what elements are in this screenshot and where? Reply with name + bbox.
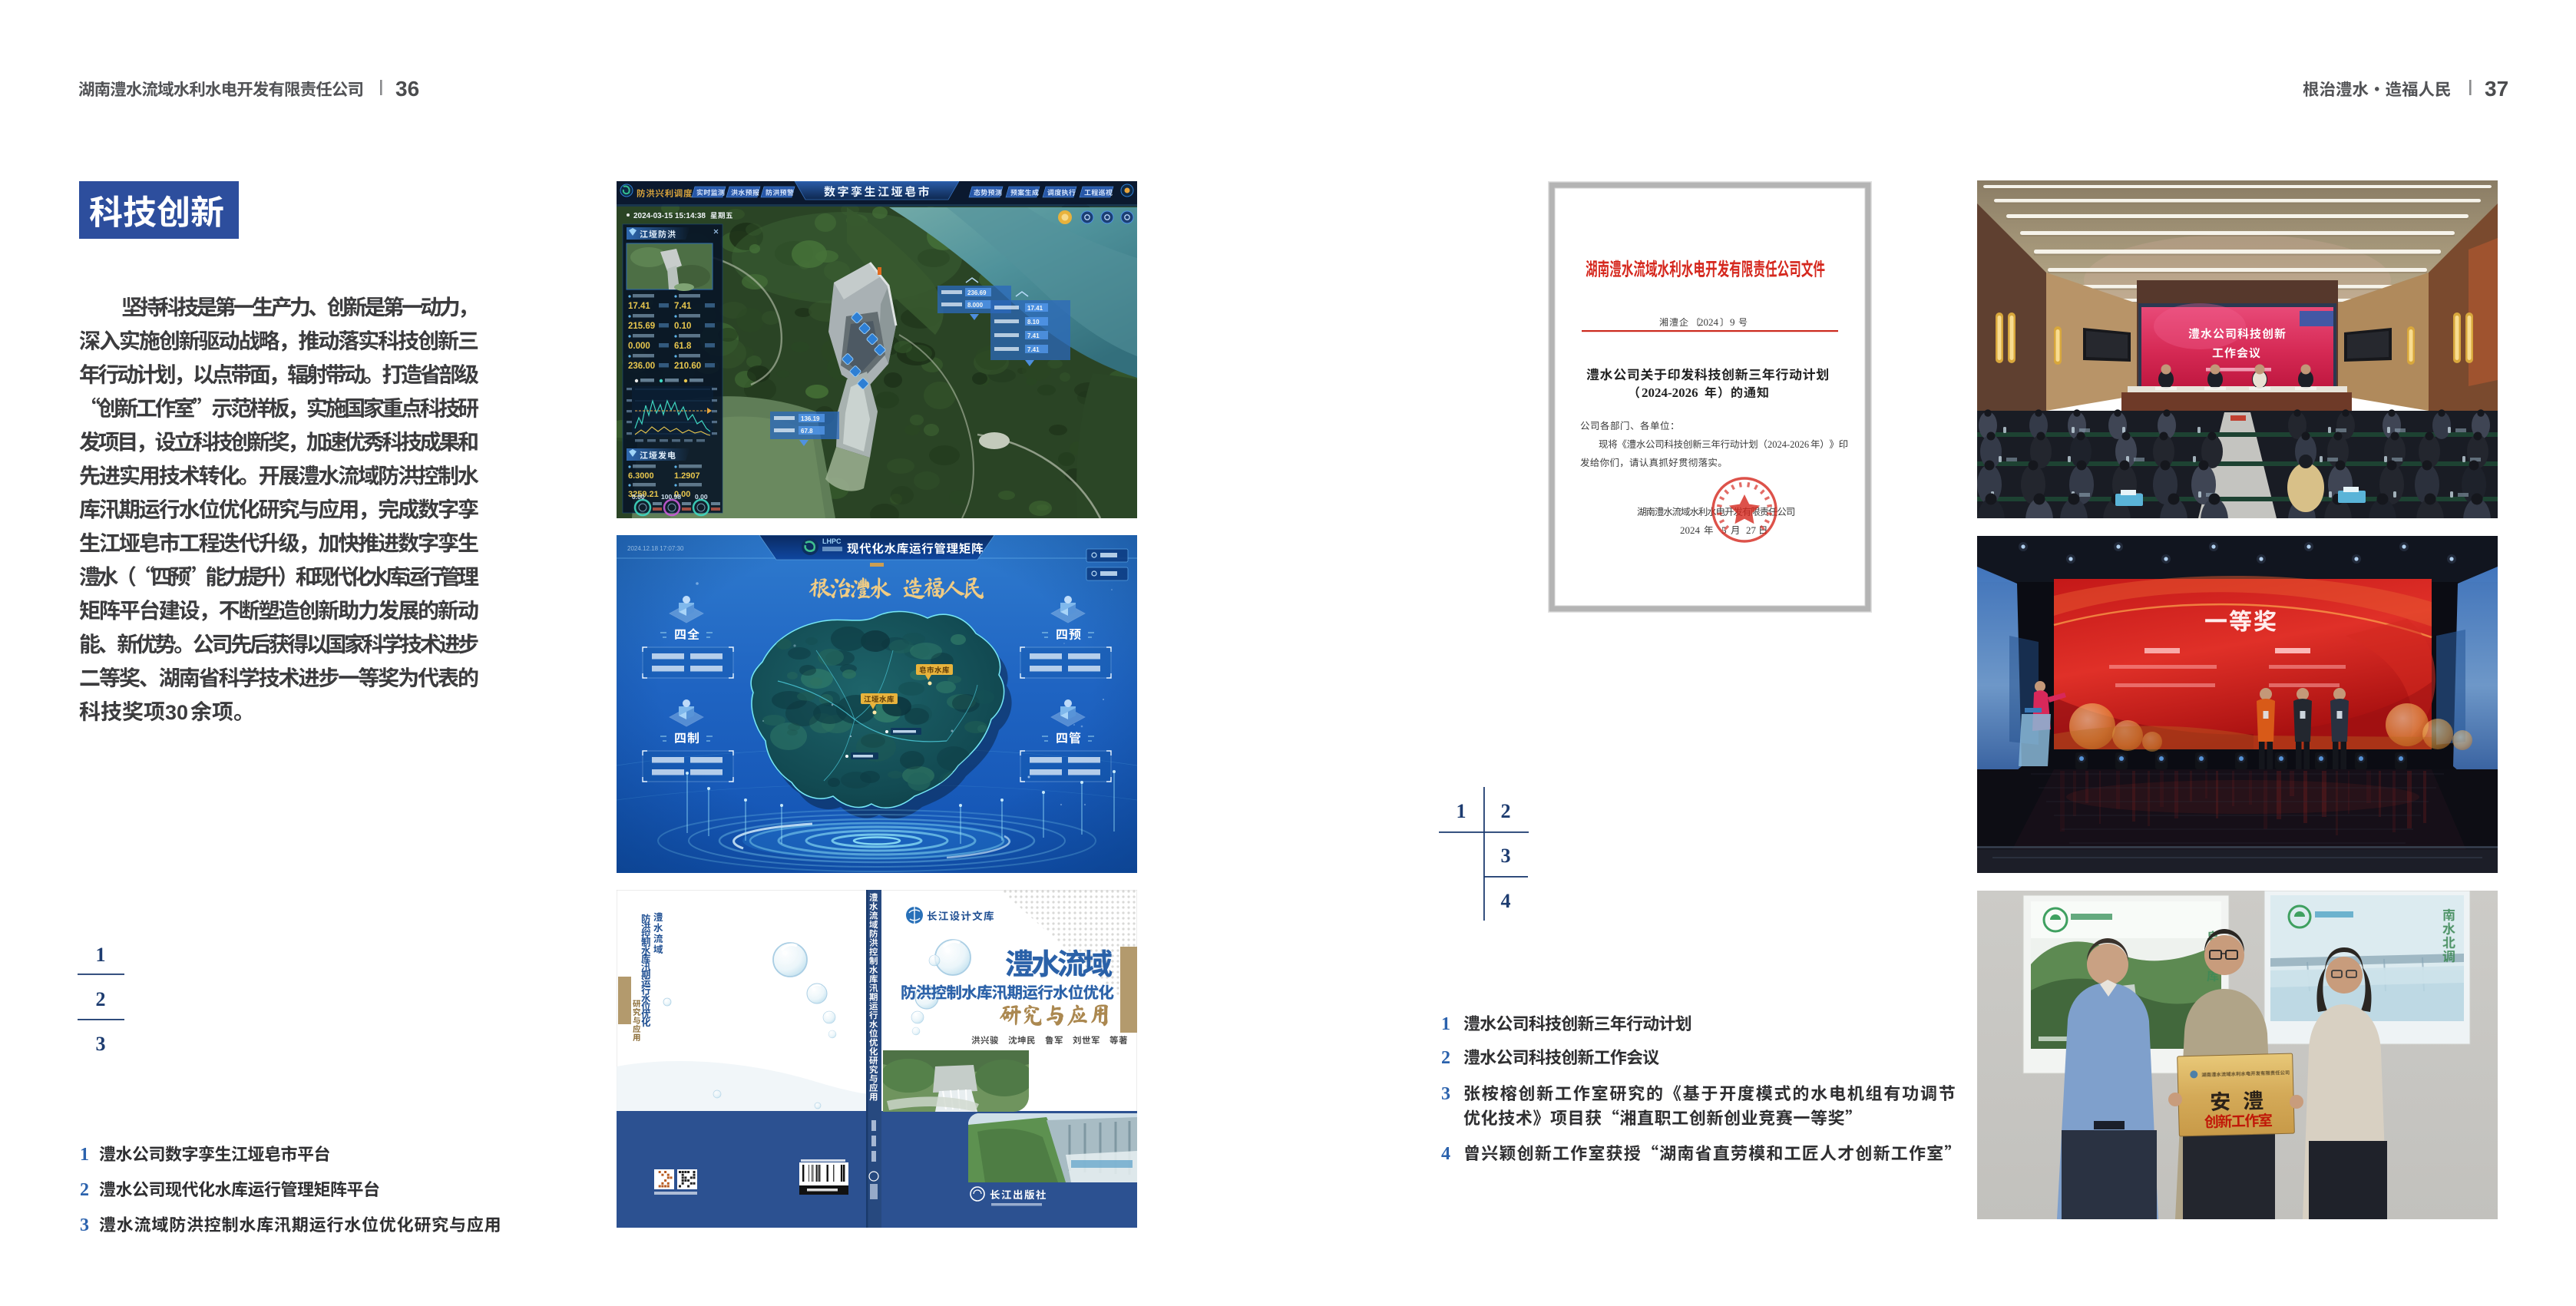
- svg-text:1.2907: 1.2907: [674, 471, 700, 481]
- svg-text:4: 4: [1441, 1144, 1450, 1164]
- svg-text:3: 3: [1441, 1084, 1450, 1104]
- svg-text:9: 9: [1730, 316, 1735, 328]
- svg-text:1: 1: [96, 944, 106, 966]
- svg-text:2024.12.18 17:07:30: 2024.12.18 17:07:30: [627, 545, 684, 552]
- svg-text:17.41: 17.41: [628, 302, 650, 311]
- svg-text:4: 4: [1501, 890, 1511, 912]
- svg-text:2024: 2024: [1680, 524, 1701, 536]
- svg-text:210.60: 210.60: [674, 362, 701, 371]
- svg-text:7.41: 7.41: [674, 302, 692, 311]
- svg-text:3: 3: [1501, 845, 1511, 867]
- svg-text:136.19: 136.19: [801, 415, 820, 422]
- svg-text:2024-03-15 15:14:38: 2024-03-15 15:14:38: [633, 212, 706, 220]
- svg-text:7.41: 7.41: [1027, 332, 1040, 339]
- svg-text:LHPC: LHPC: [822, 537, 842, 545]
- svg-text:6.3000: 6.3000: [628, 471, 654, 481]
- svg-text:30: 30: [165, 701, 188, 724]
- svg-text:1: 1: [1457, 800, 1467, 822]
- svg-text:2: 2: [1441, 1048, 1450, 1068]
- svg-text:2024: 2024: [1698, 316, 1719, 328]
- svg-text:1: 1: [80, 1145, 89, 1165]
- svg-text:27: 27: [1746, 524, 1757, 536]
- svg-text:3: 3: [96, 1033, 106, 1055]
- svg-text:100.98: 100.98: [661, 493, 681, 501]
- svg-text:67.8: 67.8: [801, 428, 813, 435]
- svg-text:17.41: 17.41: [1027, 305, 1043, 312]
- svg-text:236.00: 236.00: [628, 362, 655, 371]
- svg-text:3: 3: [80, 1215, 89, 1235]
- svg-text:36: 36: [395, 77, 419, 101]
- svg-text:1: 1: [1441, 1014, 1450, 1034]
- svg-text:0.10: 0.10: [674, 322, 691, 331]
- svg-text:215.69: 215.69: [628, 322, 655, 331]
- svg-text:0.000: 0.000: [628, 342, 650, 351]
- svg-text:8.10: 8.10: [1027, 319, 1040, 326]
- svg-text:61.8: 61.8: [674, 342, 692, 351]
- svg-text:2024-2026: 2024-2026: [1642, 385, 1698, 400]
- svg-text:0.00: 0.00: [632, 493, 645, 501]
- svg-text:0.00: 0.00: [695, 493, 708, 501]
- svg-text:2: 2: [80, 1180, 89, 1200]
- svg-text:2: 2: [1501, 800, 1511, 822]
- svg-text:2: 2: [96, 988, 106, 1010]
- svg-text:7.41: 7.41: [1027, 346, 1040, 353]
- svg-text:2024-2026: 2024-2026: [1767, 439, 1809, 450]
- svg-text:37: 37: [2485, 77, 2508, 101]
- svg-text:236.69: 236.69: [967, 289, 987, 296]
- svg-text:8.000: 8.000: [967, 302, 984, 309]
